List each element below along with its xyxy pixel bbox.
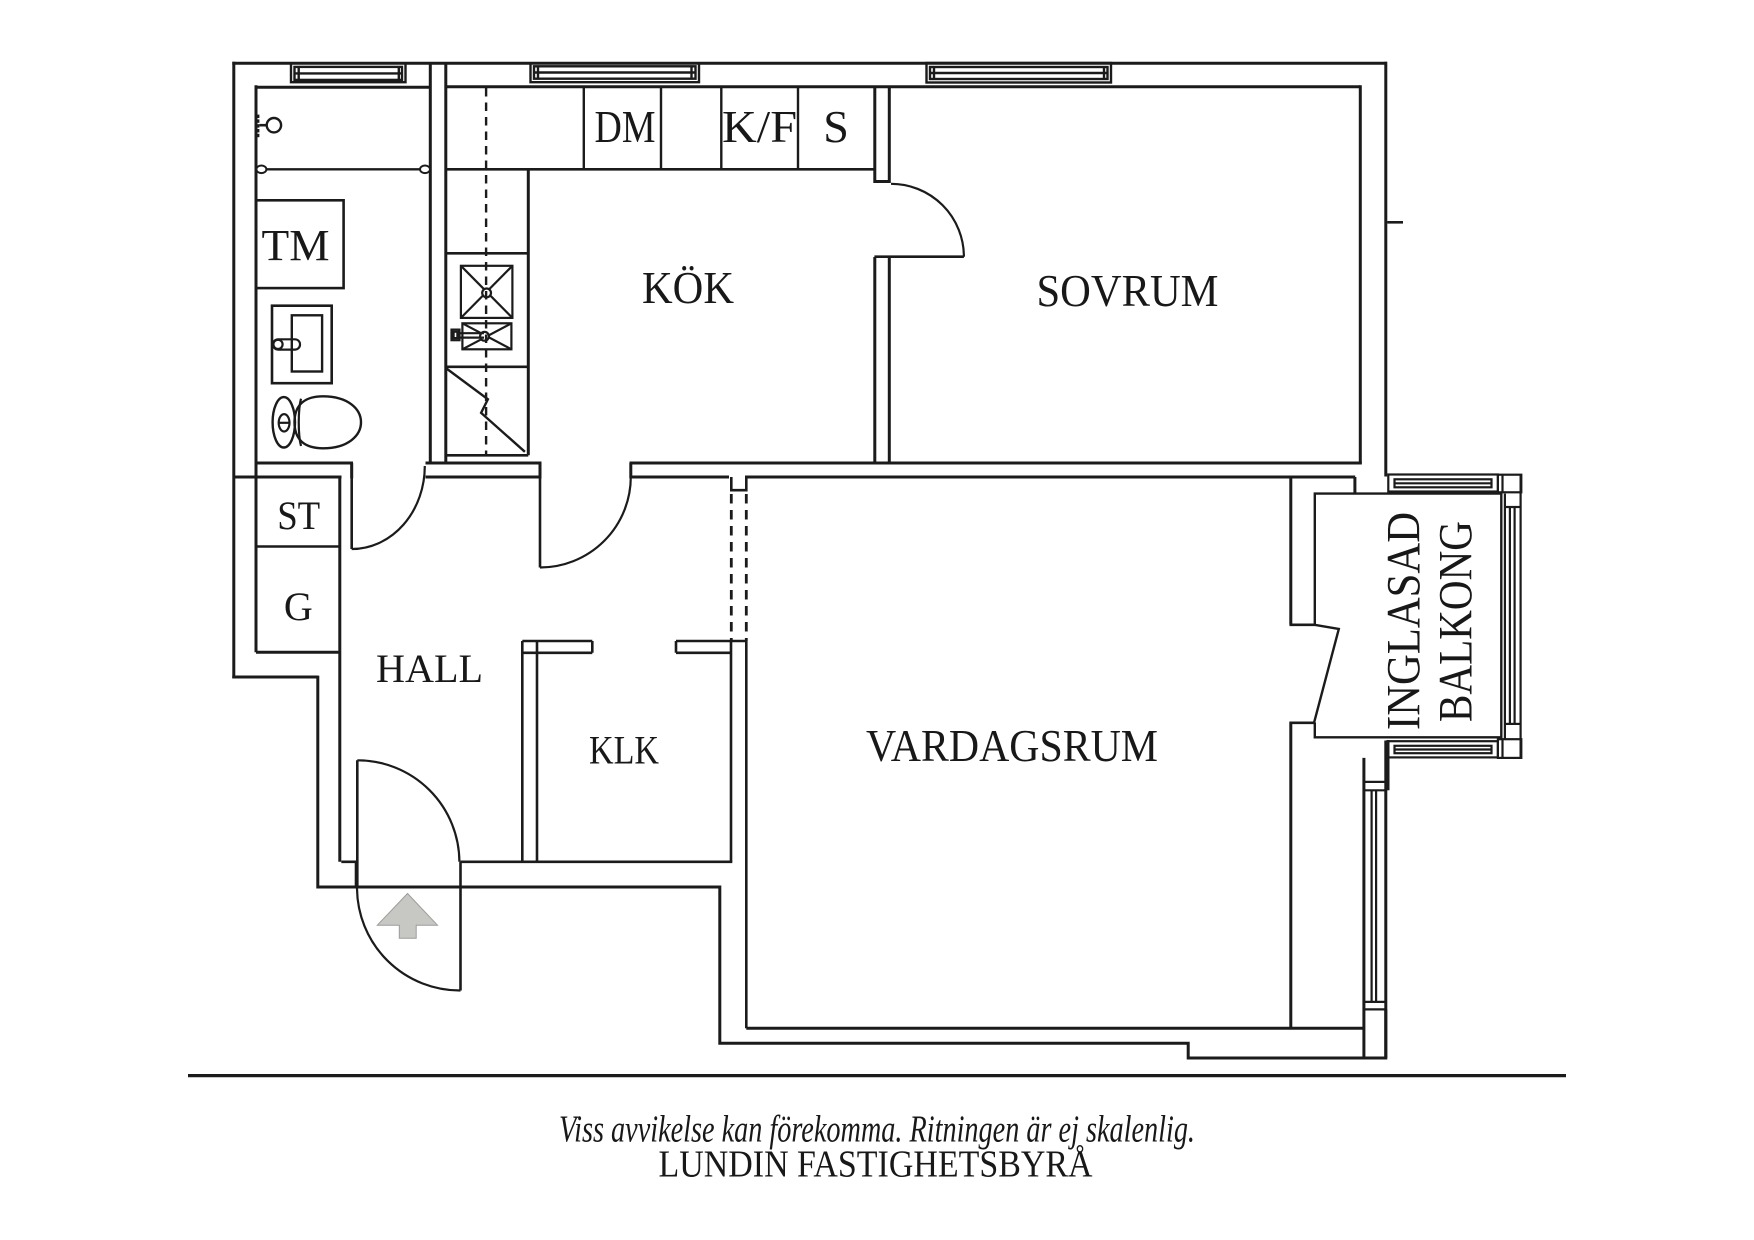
svg-text:LUNDIN FASTIGHETSBYRÅ: LUNDIN FASTIGHETSBYRÅ xyxy=(659,1144,1093,1186)
svg-text:G: G xyxy=(284,584,313,629)
svg-text:ST: ST xyxy=(277,493,320,538)
svg-text:HALL: HALL xyxy=(376,646,483,691)
svg-text:SOVRUM: SOVRUM xyxy=(1037,265,1219,316)
svg-text:TM: TM xyxy=(262,221,330,270)
svg-text:KÖK: KÖK xyxy=(642,262,734,313)
svg-text:K/F: K/F xyxy=(722,101,797,152)
svg-text:INGLASAD: INGLASAD xyxy=(1378,512,1431,730)
svg-text:DM: DM xyxy=(595,101,656,152)
svg-text:VARDAGSRUM: VARDAGSRUM xyxy=(866,720,1158,771)
svg-text:S: S xyxy=(823,101,849,152)
svg-text:BALKONG: BALKONG xyxy=(1430,521,1483,722)
svg-text:KLK: KLK xyxy=(589,728,659,773)
